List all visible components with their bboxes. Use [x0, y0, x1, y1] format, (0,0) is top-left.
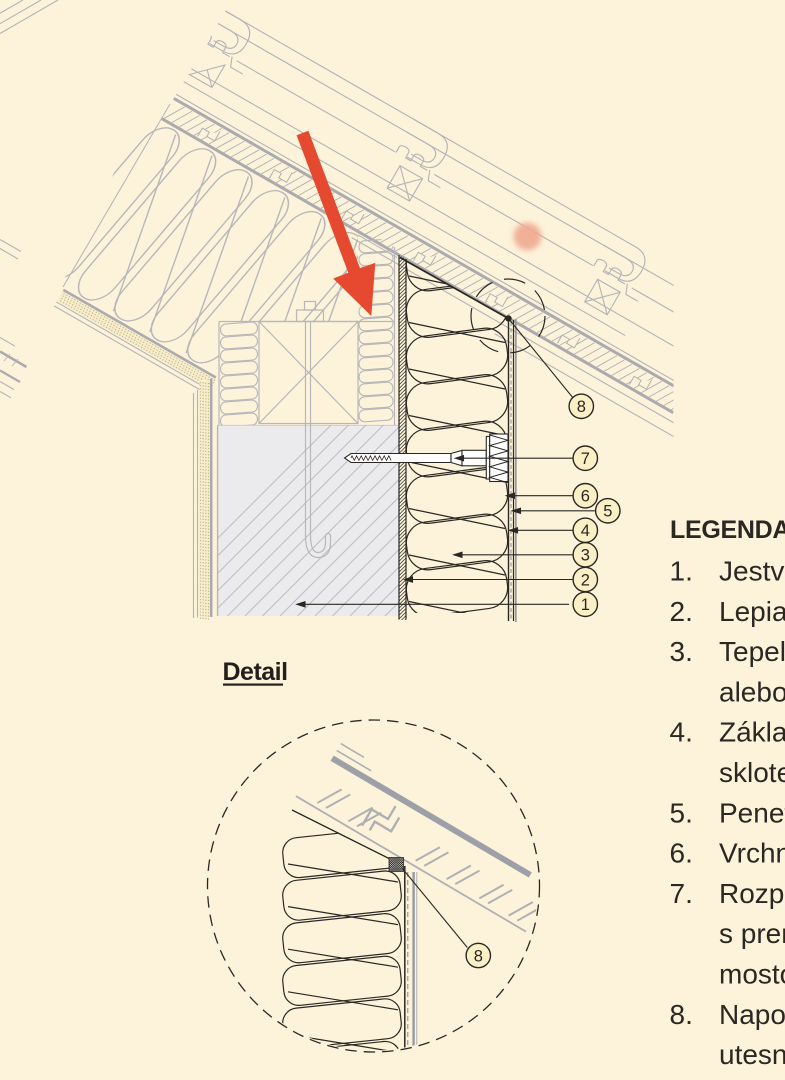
svg-text:3.: 3.: [670, 636, 693, 667]
svg-text:mostom: mostom: [719, 959, 785, 990]
svg-text:3: 3: [581, 547, 590, 565]
svg-text:Základná vrstva so: Základná vrstva so: [719, 717, 785, 748]
svg-text:Detail: Detail: [223, 658, 288, 686]
svg-text:alebo minerálnej vlny: alebo minerálnej vlny: [719, 676, 785, 707]
svg-text:2: 2: [581, 571, 590, 589]
svg-text:Napojenie a: Napojenie a: [719, 999, 785, 1030]
svg-text:8: 8: [474, 947, 483, 965]
svg-text:1: 1: [581, 596, 590, 614]
svg-text:8: 8: [577, 398, 586, 416]
svg-text:Penetračný náter: Penetračný náter: [719, 797, 785, 828]
svg-text:7: 7: [581, 450, 590, 468]
svg-text:6: 6: [581, 488, 590, 506]
svg-text:5.: 5.: [670, 797, 693, 828]
svg-text:s prerušeným tepelným: s prerušeným tepelným: [719, 918, 785, 949]
svg-text:6.: 6.: [670, 838, 693, 869]
svg-text:7.: 7.: [670, 878, 693, 909]
svg-text:5: 5: [603, 503, 612, 521]
svg-text:Vrchná omietka: Vrchná omietka: [719, 838, 785, 869]
svg-text:LEGENDA: LEGENDA: [670, 516, 785, 544]
svg-text:Rozperná kotva: Rozperná kotva: [719, 878, 785, 909]
svg-text:Tepelná izolácia z EPS: Tepelná izolácia z EPS: [719, 636, 785, 667]
svg-text:Jestvujúca stena: Jestvujúca stena: [719, 556, 785, 587]
svg-text:4.: 4.: [670, 717, 693, 748]
svg-text:utesnenie: utesnenie: [719, 1039, 785, 1070]
svg-text:Lepiaca malta: Lepiaca malta: [719, 596, 785, 627]
svg-text:8.: 8.: [670, 999, 693, 1030]
svg-text:2.: 2.: [670, 596, 693, 627]
svg-text:sklotextilnou mriežkou: sklotextilnou mriežkou: [719, 757, 785, 788]
svg-text:1.: 1.: [670, 556, 693, 587]
svg-text:4: 4: [581, 522, 590, 540]
